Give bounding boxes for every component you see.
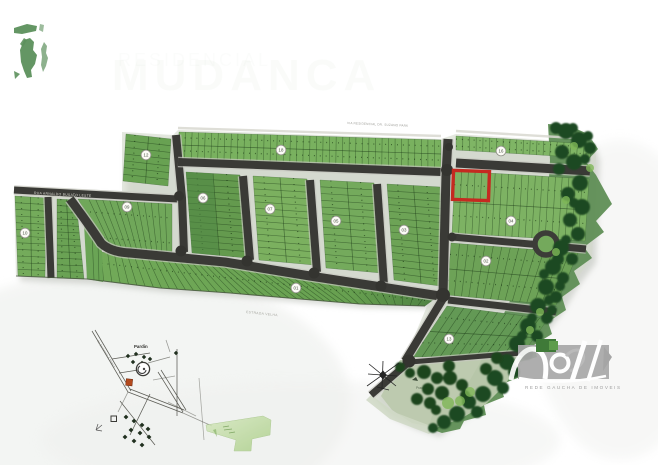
svg-text:04: 04	[509, 219, 514, 224]
svg-text:12: 12	[144, 153, 149, 158]
svg-text:16: 16	[499, 149, 504, 154]
svg-text:13: 13	[447, 337, 452, 342]
svg-text:03: 03	[402, 228, 407, 233]
svg-text:02: 02	[484, 259, 489, 264]
svg-text:18: 18	[279, 148, 284, 153]
svg-text:06: 06	[201, 196, 206, 201]
svg-text:RESIDENCIAL: RESIDENCIAL	[118, 50, 271, 70]
svg-text:REDE GAUCHA DE IMOVEIS: REDE GAUCHA DE IMOVEIS	[525, 385, 622, 390]
svg-text:07: 07	[268, 207, 273, 212]
svg-text:10: 10	[23, 231, 28, 236]
svg-text:01: 01	[294, 286, 299, 291]
svg-text:09: 09	[125, 205, 130, 210]
svg-text:Pardin: Pardin	[134, 344, 148, 349]
svg-text:05: 05	[334, 219, 339, 224]
